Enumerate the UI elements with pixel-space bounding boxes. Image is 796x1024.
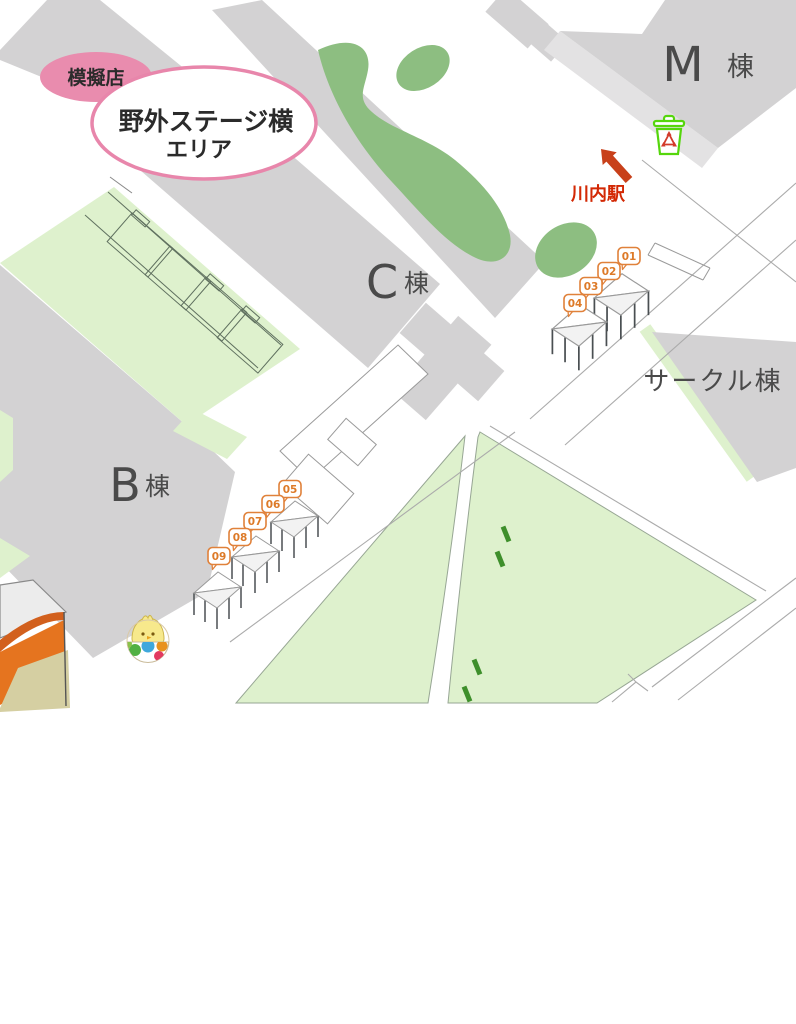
stall-number: 09	[212, 551, 227, 563]
stall-number: 08	[233, 532, 248, 544]
category-label: 模擬店	[67, 66, 124, 89]
building-c-label: C	[366, 255, 398, 309]
grass-sliver-left	[0, 410, 13, 482]
stall-number: 02	[602, 266, 617, 278]
building-b-label: B	[109, 458, 141, 512]
building-b-suffix: 棟	[145, 472, 170, 501]
station-label: 川内駅	[570, 183, 626, 205]
area-name-line1: 野外ステージ横	[119, 107, 294, 136]
stall-number: 06	[266, 499, 281, 511]
stall-number: 03	[584, 281, 599, 293]
stall-number: 04	[568, 298, 583, 310]
stall-number: 05	[283, 484, 298, 496]
recycle-bin-icon	[654, 116, 684, 154]
campus-map: 01 02 03 04 05 06 07	[0, 0, 796, 1024]
stall-number: 07	[248, 516, 263, 528]
stall-number: 01	[622, 251, 637, 263]
area-name-line2: エリア	[166, 138, 232, 163]
building-m-suffix: 棟	[727, 52, 754, 83]
building-m-label: M	[662, 37, 703, 93]
building-circle-hall-label: サークル棟	[643, 367, 782, 397]
building-c-suffix: 棟	[404, 269, 429, 298]
